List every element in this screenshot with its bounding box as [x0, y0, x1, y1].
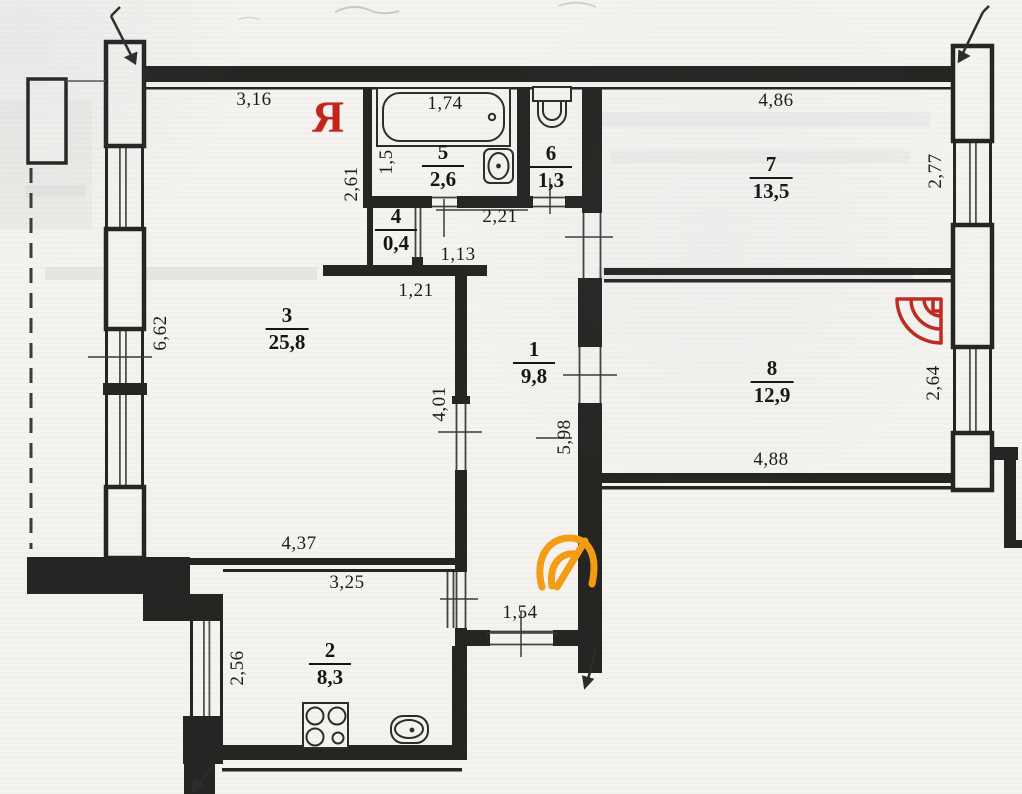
floor-plan-page: Я 3,161,741,52,614,862,772,211,131,216,6… [0, 0, 1022, 794]
fixtures [303, 87, 571, 748]
bathroom-sink-icon [484, 149, 513, 183]
red-fan-logo-icon [897, 299, 941, 343]
red-ya-watermark: Я [312, 92, 344, 143]
toilet-icon [533, 87, 571, 127]
stove-icon [303, 703, 348, 748]
floor-plan-drawing [0, 0, 1022, 794]
balcony-outline [28, 79, 105, 549]
interior-walls [143, 88, 955, 760]
door-openings [416, 198, 601, 645]
bathtub-icon [377, 88, 510, 146]
kitchen-sink-icon [391, 716, 428, 743]
